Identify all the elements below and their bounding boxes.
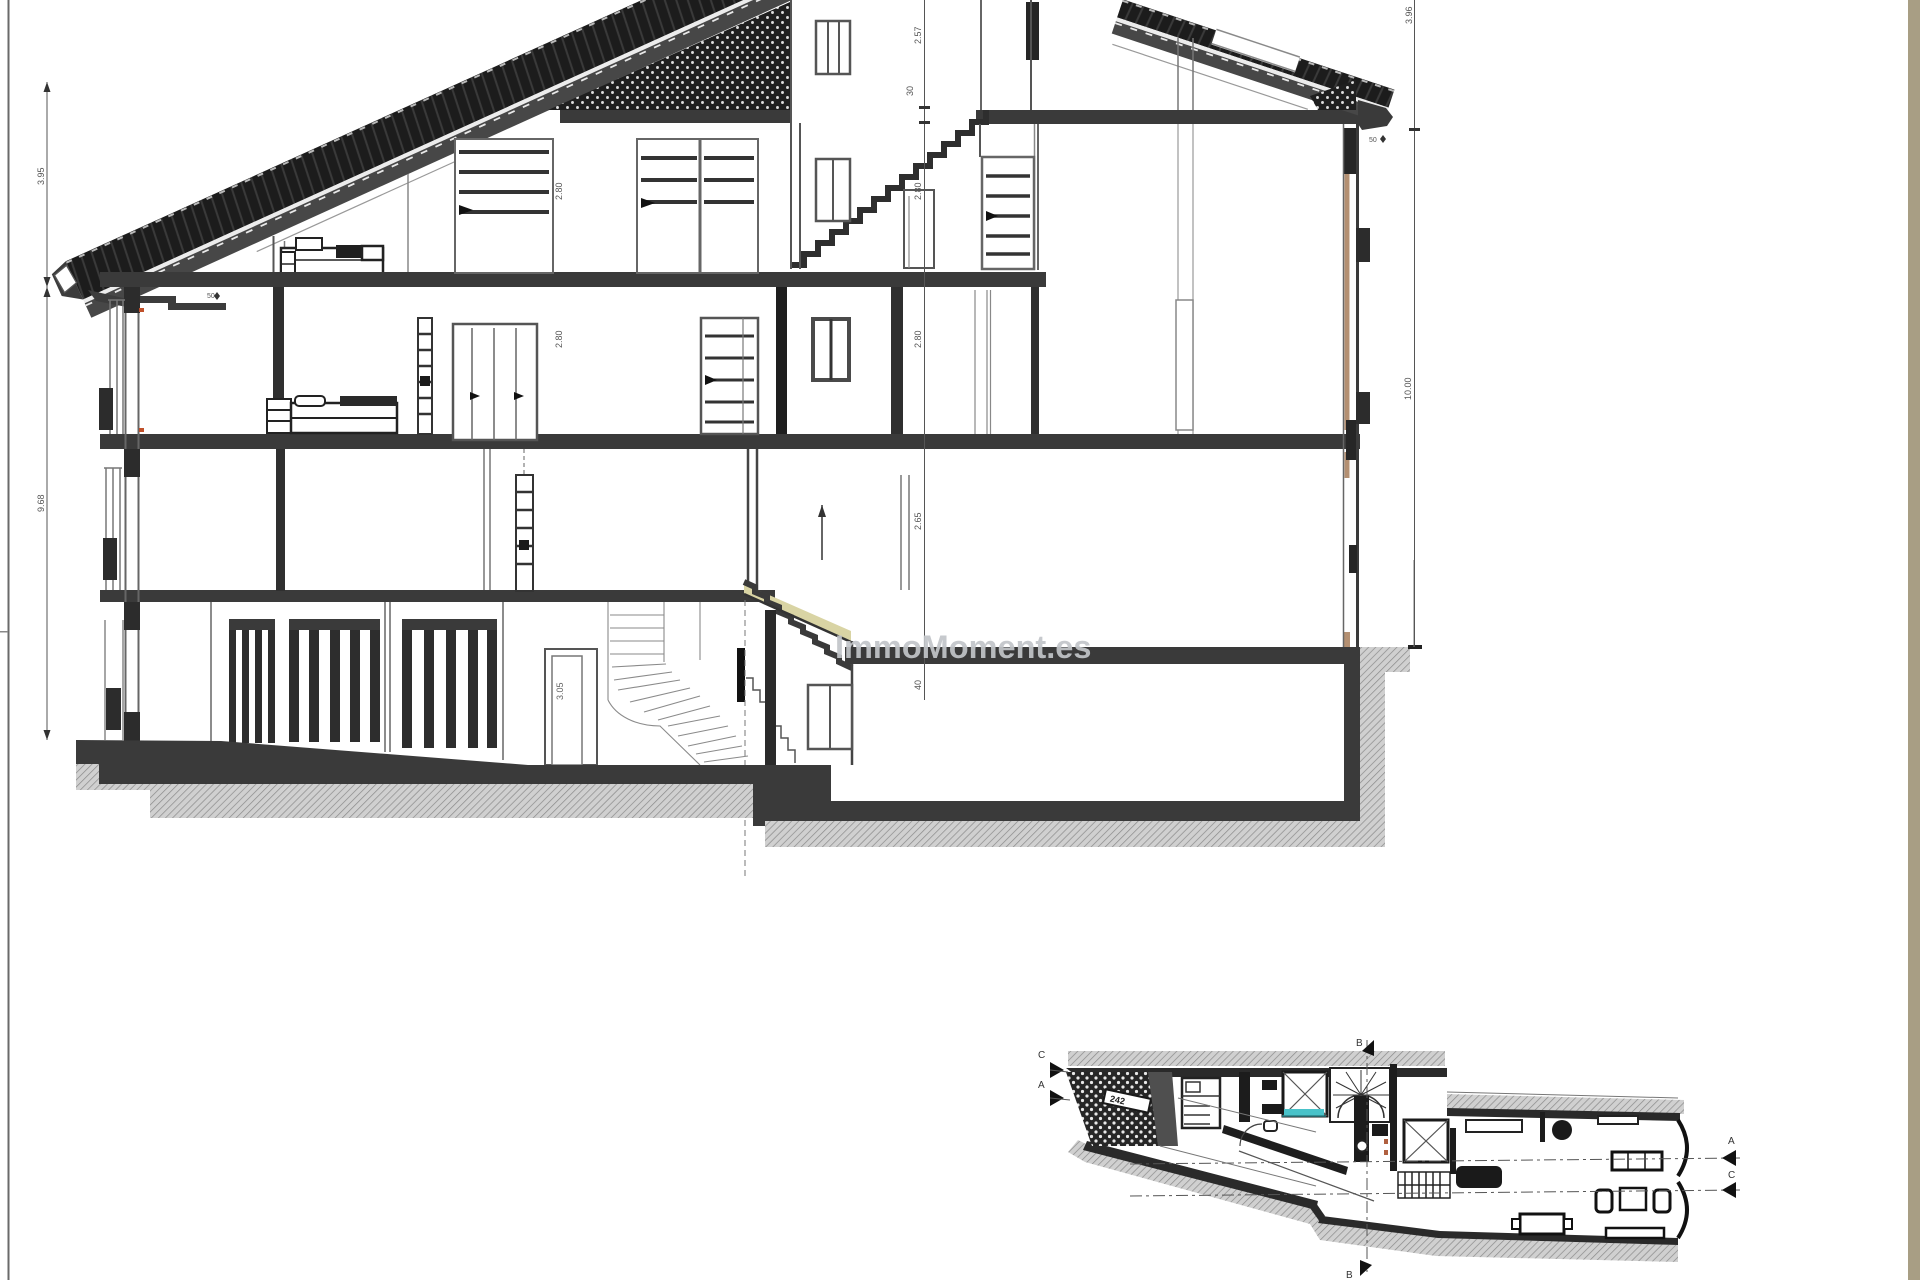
- svg-text:30: 30: [905, 86, 915, 96]
- svg-text:10.00: 10.00: [1403, 377, 1413, 400]
- svg-text:C: C: [1038, 1050, 1045, 1061]
- svg-text:A: A: [1728, 1136, 1735, 1147]
- svg-text:C: C: [1728, 1170, 1735, 1181]
- svg-text:2.80: 2.80: [554, 182, 564, 200]
- svg-text:50: 50: [1369, 137, 1377, 144]
- svg-text:ImmoMoment.es: ImmoMoment.es: [835, 629, 1091, 665]
- svg-text:2.57: 2.57: [913, 26, 923, 44]
- svg-text:A: A: [1038, 1080, 1045, 1091]
- svg-text:2.80: 2.80: [554, 330, 564, 348]
- svg-text:B: B: [1356, 1038, 1363, 1049]
- svg-text:3.05: 3.05: [555, 682, 565, 700]
- svg-text:2.65: 2.65: [913, 512, 923, 530]
- svg-text:2.80: 2.80: [913, 182, 923, 200]
- svg-text:3.95: 3.95: [36, 167, 46, 185]
- svg-text:40: 40: [913, 680, 923, 690]
- svg-text:B: B: [1346, 1270, 1353, 1280]
- svg-text:2.80: 2.80: [913, 330, 923, 348]
- svg-text:3.96: 3.96: [1404, 6, 1414, 24]
- svg-text:50: 50: [207, 293, 215, 300]
- svg-text:9.68: 9.68: [36, 494, 46, 512]
